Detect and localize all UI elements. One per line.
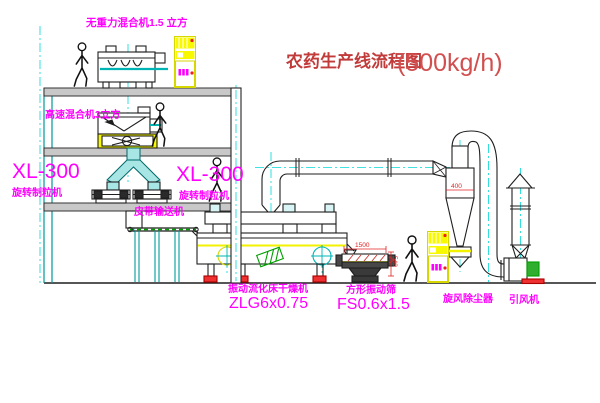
label-cyclone: 旋风除尘器 [442,292,494,305]
gravity-free-mixer [98,46,168,88]
label-sieve-name: 方形振动筛 [346,283,396,296]
pesticide-line-drawing: 农药生产线流程图 (500kg/h) 无重力混合机1.5 立方 高速混合机3立方… [0,0,600,403]
title-capacity: (500kg/h) [397,49,503,77]
dim-cyclone: 400 [451,183,462,190]
granulator-left [92,182,130,203]
belt-conveyor [126,211,206,282]
dim-sieve-width: 1500 [355,242,370,249]
label-gravity-mixer: 无重力混合机1.5 立方 [85,16,188,29]
worker-figure-ground [404,236,418,281]
label-high-speed-mixer: 高速混合机3立方 [45,108,121,121]
label-granulator-right-model: XL-300 [176,163,244,186]
label-dryer-model: ZLG6x0.75 [229,295,308,312]
label-sieve-model: FS0.6x1.5 [337,296,410,313]
control-cabinet-upper [175,37,196,88]
label-granulator-right-name: 旋转制粒机 [178,189,229,202]
granulator-right [133,182,171,203]
induced-draft-fan [504,258,544,284]
dim-sieve-height: 540 [391,256,398,267]
label-fan: 引风机 [509,293,539,306]
worker-figure-top-floor [74,43,87,86]
cad-flowsheet-canvas: 农药生产线流程图 (500kg/h) 无重力混合机1.5 立方 高速混合机3立方… [0,0,600,403]
control-cabinet-lower [428,232,449,283]
label-granulator-left-name: 旋转制粒机 [11,186,62,199]
label-dryer-name: 振动流化床干燥机 [228,282,308,295]
label-belt-conveyor: 皮带输送机 [133,205,184,218]
label-granulator-left-model: XL-300 [12,160,80,183]
